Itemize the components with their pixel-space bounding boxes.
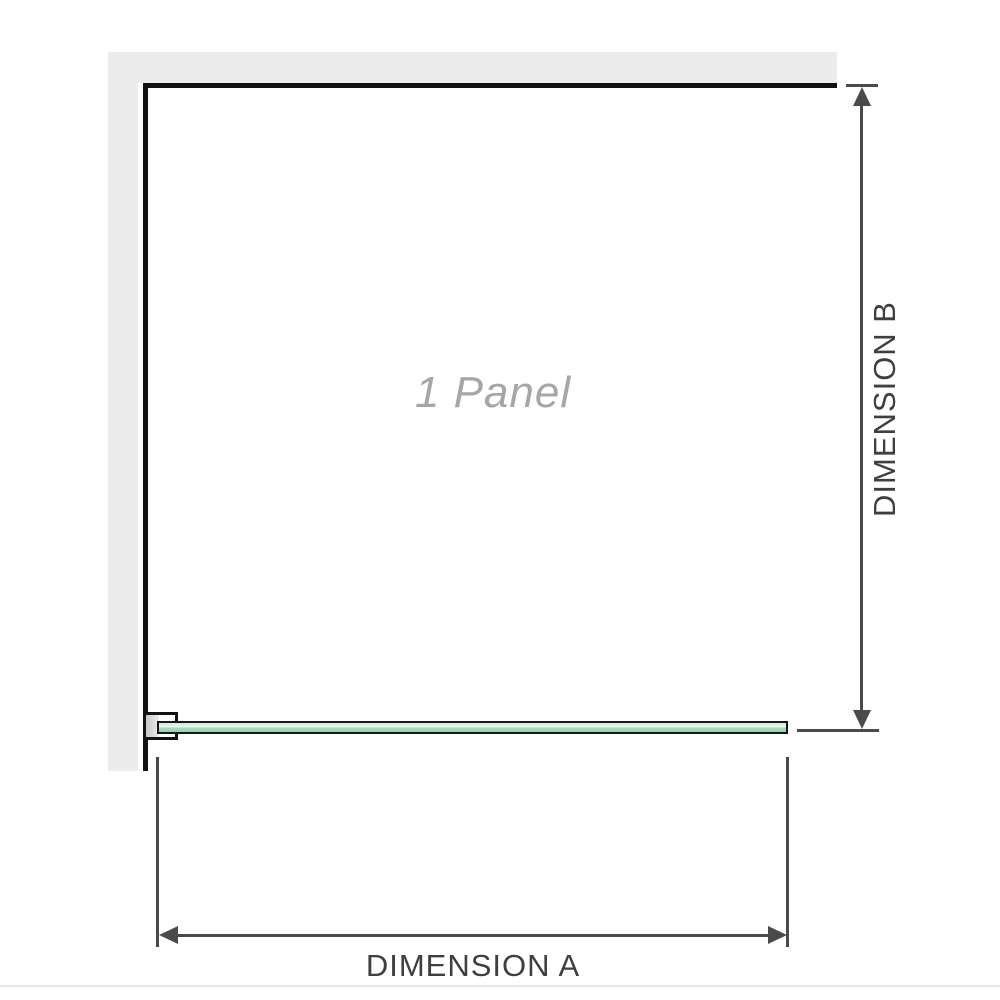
dimension-a-extension-right — [786, 757, 789, 947]
arrow-right-icon — [768, 926, 787, 944]
dimension-b-line — [860, 96, 863, 720]
panel-outline-top — [143, 83, 837, 88]
arrow-down-icon — [853, 710, 871, 729]
dimension-b-extension-bottom — [797, 729, 879, 732]
wall-top — [108, 52, 837, 83]
dimension-a-label: DIMENSION A — [157, 948, 789, 984]
arrow-up-icon — [853, 87, 871, 106]
panel-dimension-diagram: 1 Panel DIMENSION B DIMENSION A — [0, 0, 1000, 1000]
dimension-a-line — [165, 934, 777, 937]
footer-divider — [0, 985, 1000, 987]
panel-outline-left — [143, 83, 148, 771]
glass-panel-bar — [157, 721, 788, 734]
dimension-b-label-text: DIMENSION B — [867, 301, 903, 517]
dimension-a-extension-left — [156, 757, 159, 947]
wall-left — [108, 52, 138, 771]
panel-count-label: 1 Panel — [148, 368, 838, 418]
arrow-left-icon — [159, 926, 178, 944]
